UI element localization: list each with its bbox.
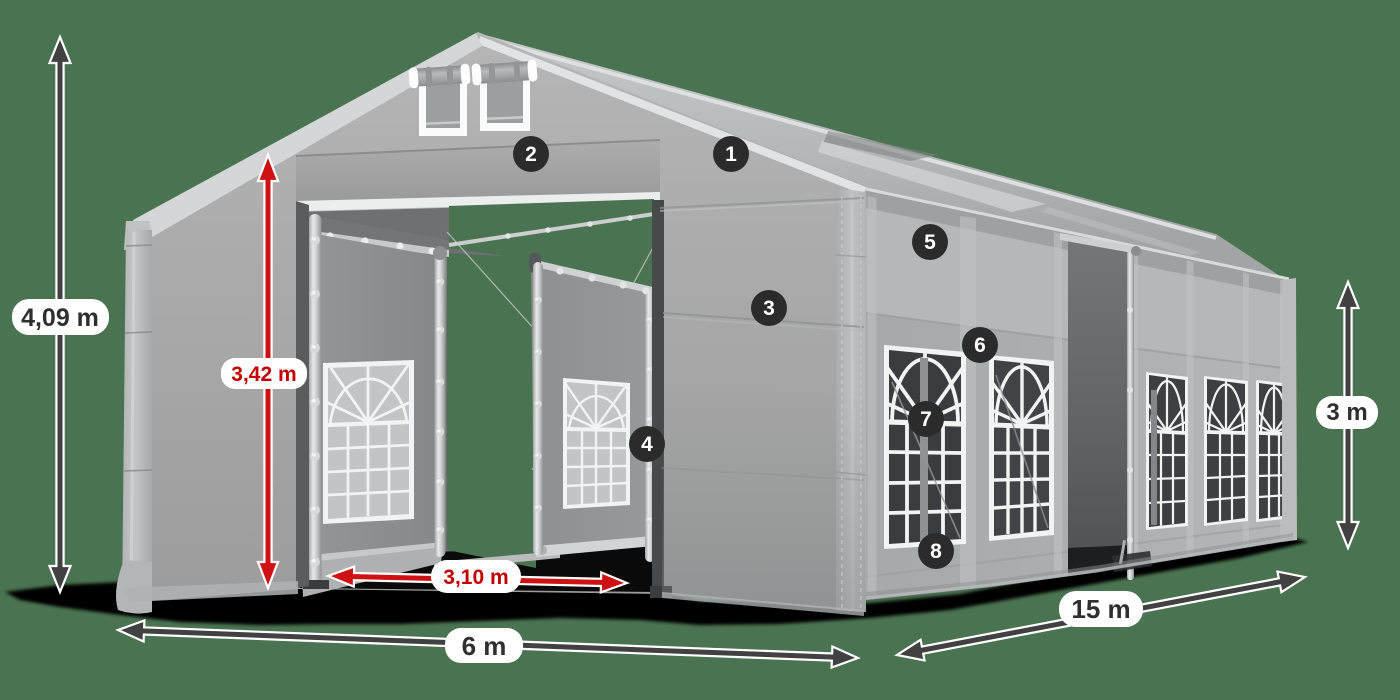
svg-text:6: 6 [974,334,986,357]
svg-text:15 m: 15 m [1071,594,1130,624]
svg-text:5: 5 [924,231,936,254]
svg-text:4: 4 [641,433,653,456]
svg-text:3,10 m: 3,10 m [443,566,508,589]
svg-text:1: 1 [725,143,737,166]
svg-text:4,09 m: 4,09 m [21,304,99,332]
svg-text:6 m: 6 m [462,631,507,661]
svg-text:3: 3 [763,297,775,320]
svg-text:8: 8 [930,540,942,563]
svg-text:3 m: 3 m [1326,399,1367,426]
svg-text:2: 2 [525,143,537,166]
svg-text:7: 7 [920,408,932,431]
svg-text:3,42 m: 3,42 m [231,363,296,386]
